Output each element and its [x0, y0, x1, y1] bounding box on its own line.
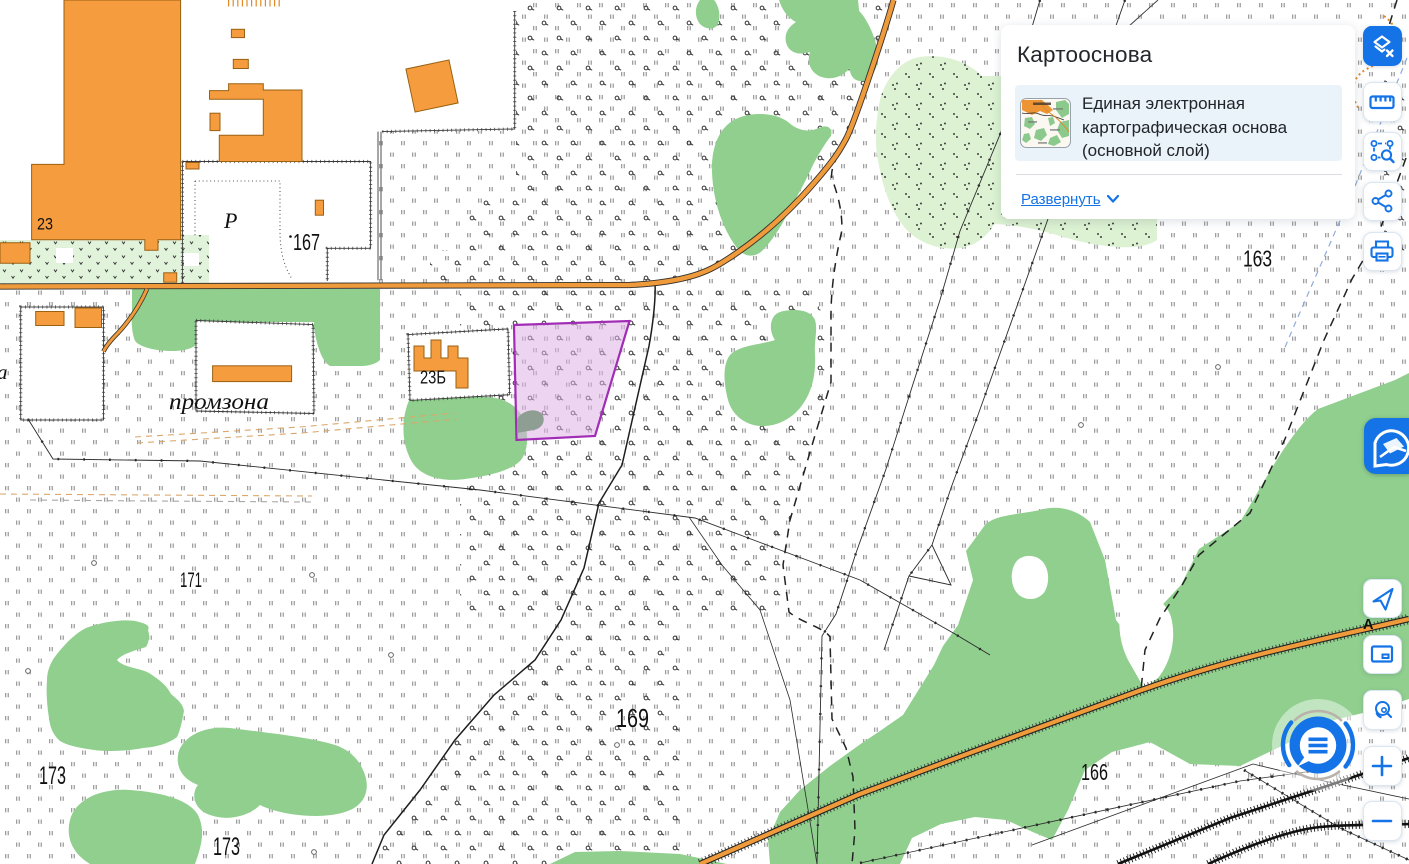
svg-text:Р: Р [223, 208, 237, 233]
svg-text:169: 169 [616, 703, 649, 733]
svg-text:23Б: 23Б [420, 368, 446, 388]
svg-text:A: A [1363, 617, 1374, 633]
svg-text:166: 166 [1081, 759, 1108, 785]
svg-text:а: а [0, 360, 8, 384]
svg-text:171: 171 [180, 569, 202, 592]
svg-text:163: 163 [1243, 246, 1272, 272]
svg-text:173: 173 [39, 762, 66, 790]
svg-text:23: 23 [37, 215, 53, 234]
svg-text:167: 167 [293, 229, 320, 255]
svg-text:173: 173 [213, 833, 240, 861]
svg-text:промзона: промзона [169, 389, 269, 414]
